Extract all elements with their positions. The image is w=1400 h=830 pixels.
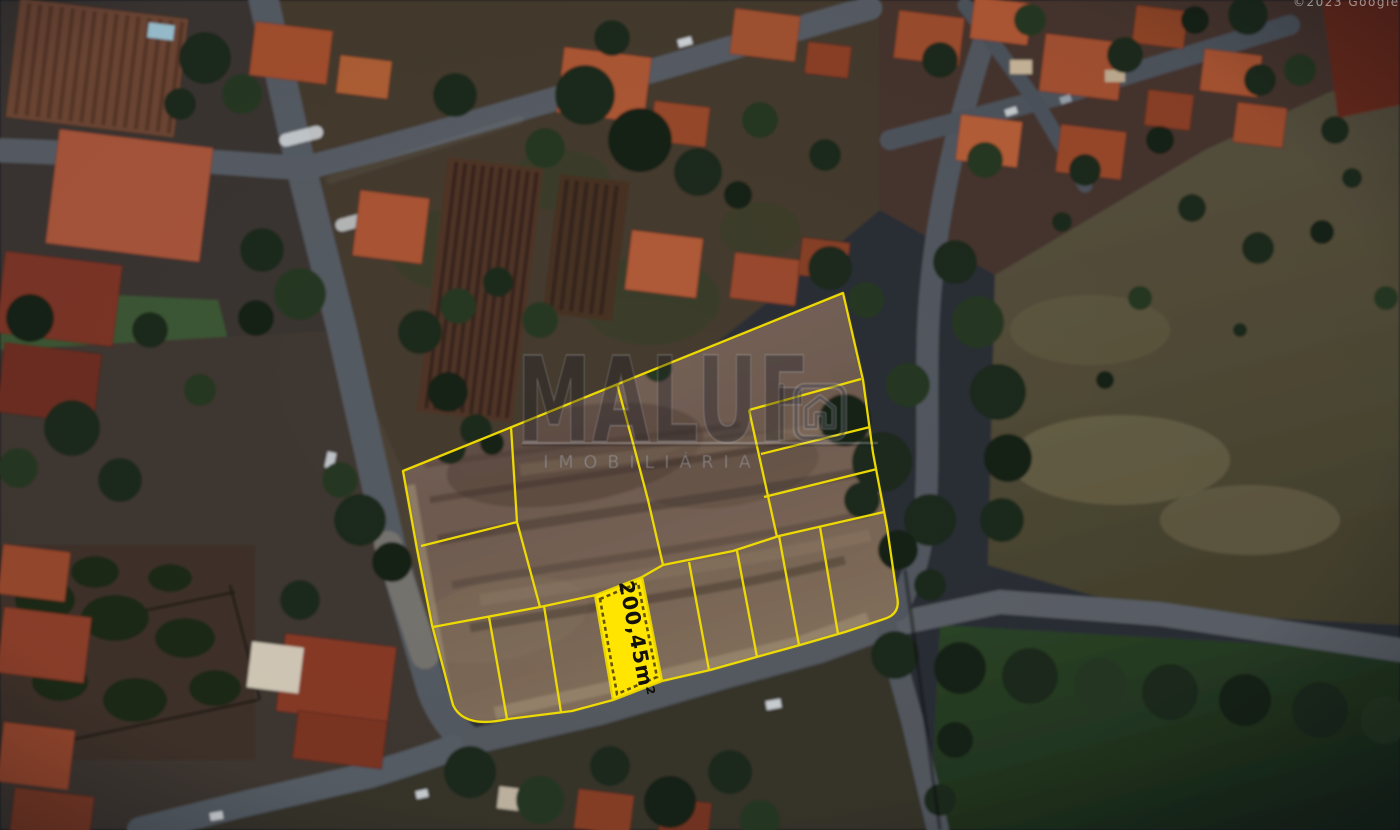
watermark-subtitle-text: IMOBILIÁRIA: [543, 451, 760, 473]
aerial-map-canvas: 200,45m² MALUF IMOBILIÁRIA ©2023 Google: [0, 0, 1400, 830]
logo-separator: [779, 384, 784, 440]
watermark-brand-text: MALUF: [517, 332, 811, 470]
attribution-text: ©2023 Google: [1293, 0, 1400, 9]
satellite-photo: 200,45m² MALUF IMOBILIÁRIA ©2023 Google: [0, 0, 1400, 830]
